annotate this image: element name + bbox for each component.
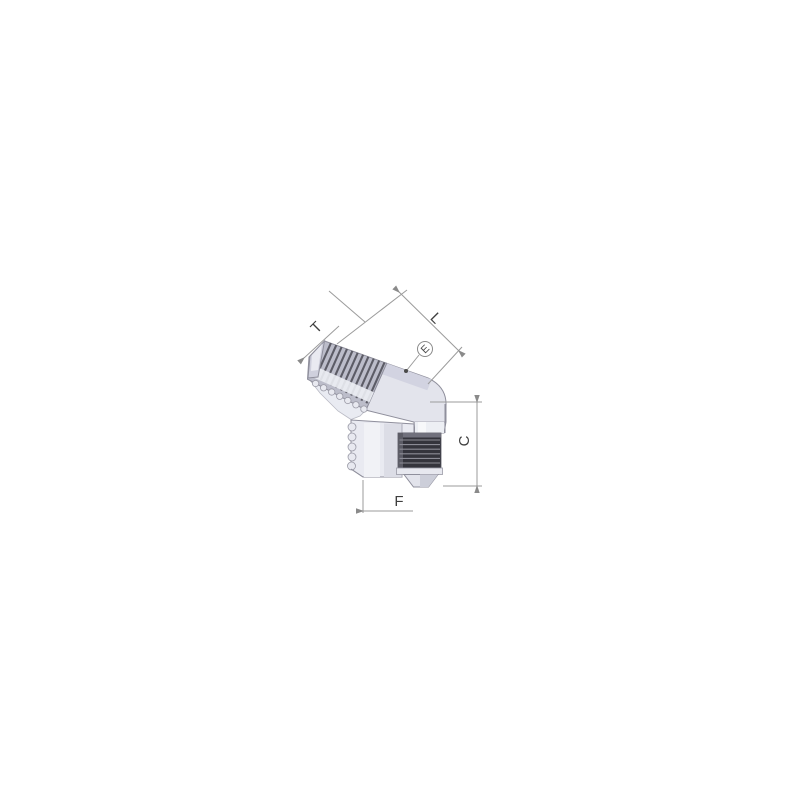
- dim-label-l: L: [427, 309, 445, 327]
- neck-highlight: [418, 422, 426, 433]
- flare-nose-shade: [420, 475, 438, 488]
- jic-shoulder-ring: [397, 468, 443, 475]
- t-ext-line: [329, 291, 365, 322]
- l-ext-line-tip: [337, 290, 407, 344]
- e-leader-dot: [404, 369, 408, 373]
- drawing-page: T L E C F: [0, 0, 800, 800]
- dim-label-f: F: [394, 493, 403, 510]
- dim-label-c: C: [456, 435, 473, 446]
- dim-label-t: T: [307, 318, 326, 337]
- e-leader-line: [407, 355, 419, 370]
- hex-highlight-band: [364, 423, 380, 477]
- jic-top-chamfer: [398, 433, 441, 438]
- l-ext-line-elbow: [428, 347, 462, 384]
- fitting-diagram: T L E C F: [0, 0, 800, 800]
